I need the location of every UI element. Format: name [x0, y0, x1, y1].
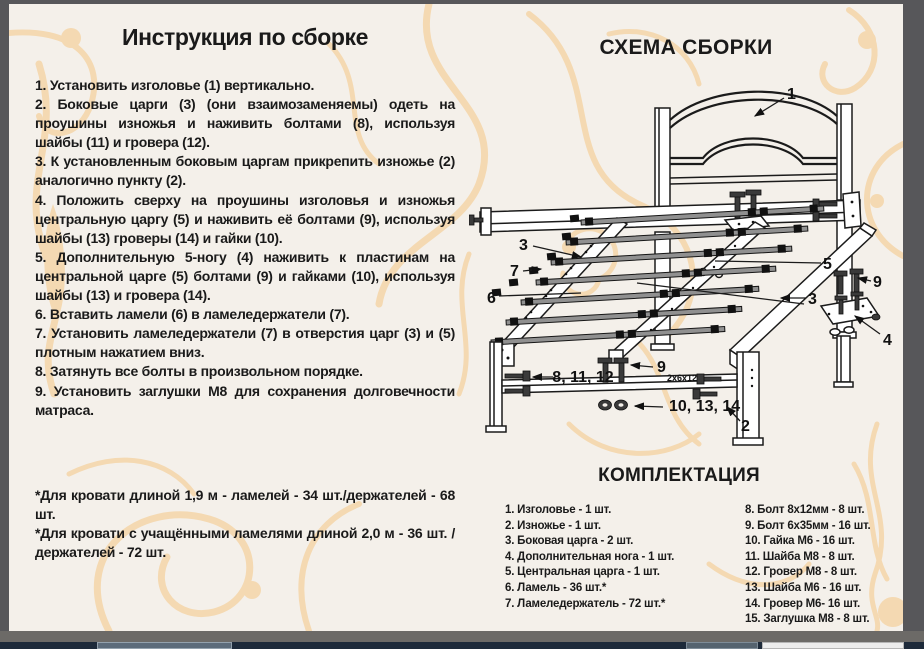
parts-item: 11. Шайба М8 - 8 шт.	[745, 550, 903, 566]
callout-extra-leg: 4	[883, 332, 892, 349]
parts-title: КОМПЛЕКТАЦИЯ	[469, 465, 889, 487]
footboard	[486, 342, 763, 445]
callout-side-rail-left: 3	[519, 237, 528, 254]
callout-lamella-holder: 7	[510, 263, 519, 280]
document-page: Инструкция по сборке 1. Установить изгол…	[9, 4, 903, 631]
callout-nuts-footboard: 10, 13, 14	[669, 398, 740, 415]
taskbar-button[interactable]	[686, 642, 758, 649]
instruction-step: 4. Положить сверху на проушины изголовья…	[35, 191, 455, 248]
parts-list-left: 1. Изголовье - 1 шт. 2. Изножье - 1 шт. …	[505, 503, 740, 612]
parts-item: 10. Гайка М6 - 16 шт.	[745, 534, 903, 550]
callout-bolts-footboard: 8, 11, 12	[552, 369, 613, 386]
loose-nuts	[599, 400, 628, 410]
parts-item: 8. Болт 8х12мм - 8 шт.	[745, 503, 903, 519]
callout-bolts-leg: 9	[873, 274, 882, 291]
parts-item: 9. Болт 6х35мм - 16 шт.	[745, 519, 903, 535]
instruction-step: 9. Установить заглушки М8 для сохранения…	[35, 382, 455, 420]
parts-item: 3. Боковая царга - 2 шт.	[505, 534, 740, 550]
footnote: *Для кровати с учащёнными ламелями длино…	[35, 524, 455, 562]
diagram-title: СХЕМА СБОРКИ	[469, 36, 903, 60]
callout-bolt-size-note: 2х6х12	[667, 373, 697, 383]
callout-side-rail-right: 3	[808, 291, 817, 308]
callout-bolts-vertical: 9	[657, 359, 666, 376]
parts-item: 2. Изножье - 1 шт.	[505, 519, 740, 535]
instruction-step: 3. К установленным боковым царгам прикре…	[35, 152, 455, 190]
assembly-diagram: 1 3 7 6 5 3 9 4 8, 11, 12 9 2х6х12 10, 1…	[469, 74, 903, 464]
parts-item: 14. Гровер М6- 16 шт.	[745, 597, 903, 613]
window-bottom-edge	[0, 631, 924, 642]
parts-item: 6. Ламель - 36 шт.*	[505, 581, 740, 597]
taskbar	[0, 642, 924, 649]
callout-central-rail: 5	[823, 256, 832, 273]
footnotes: *Для кровати длиной 1,9 м - ламелей - 34…	[35, 486, 455, 562]
callout-lamella: 6	[487, 290, 496, 307]
parts-item: 1. Изголовье - 1 шт.	[505, 503, 740, 519]
instruction-step: 7. Установить ламеледержатели (7) в отве…	[35, 324, 455, 362]
taskbar-button[interactable]	[97, 642, 232, 649]
instruction-step: 6. Вставить ламели (6) в ламеледержатели…	[35, 305, 455, 324]
callout-headboard: 1	[787, 86, 796, 103]
callout-footboard: 2	[741, 418, 750, 435]
parts-item: 15. Заглушка М8 - 8 шт.	[745, 612, 903, 628]
parts-item: 7. Ламеледержатель - 72 шт.*	[505, 597, 740, 613]
parts-list-right: 8. Болт 8х12мм - 8 шт. 9. Болт 6х35мм - …	[745, 503, 903, 628]
instructions-title: Инструкция по сборке	[35, 24, 455, 51]
instruction-step: 5. Дополнительную 5-ногу (4) наживить к …	[35, 248, 455, 305]
parts-item: 5. Центральная царга - 1 шт.	[505, 565, 740, 581]
instruction-step: 1. Установить изголовье (1) вертикально.	[35, 76, 455, 95]
footnote: *Для кровати длиной 1,9 м - ламелей - 34…	[35, 486, 455, 524]
parts-item: 12. Гровер М8 - 8 шт.	[745, 565, 903, 581]
parts-item: 4. Дополнительная нога - 1 шт.	[505, 550, 740, 566]
instruction-step: 2. Боковые царги (3) (они взаимозаменяем…	[35, 95, 455, 152]
instructions-list: 1. Установить изголовье (1) вертикально.…	[35, 76, 455, 420]
instruction-step: 8. Затянуть все болты в произвольном пор…	[35, 362, 455, 381]
taskbar-button[interactable]	[762, 642, 904, 649]
parts-item: 13. Шайба М6 - 16 шт.	[745, 581, 903, 597]
